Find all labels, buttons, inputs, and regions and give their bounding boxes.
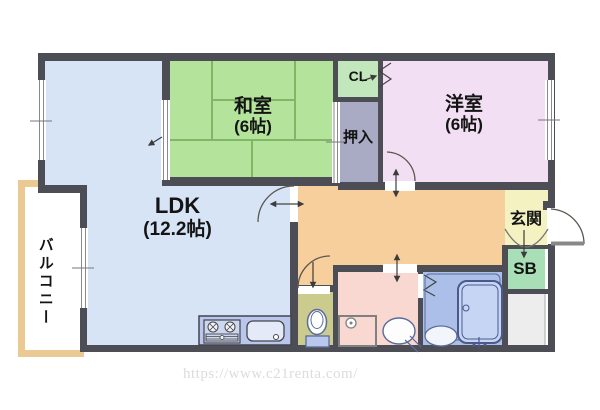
wall-closet-bottom [333, 97, 383, 102]
floorplan-drawing [0, 0, 600, 410]
opening-washroom [383, 264, 417, 273]
watermark-url: https://www.c21renta.com/ [183, 366, 358, 383]
balcony-label: バルコニー [36, 212, 53, 352]
kitchen-counter-icon [199, 316, 291, 345]
opening-yoshitsu [385, 181, 415, 191]
genkan-label: 玄関 [504, 211, 548, 229]
oshiire-label: 押入 [336, 130, 380, 147]
room-storage [506, 292, 545, 346]
shower-basin-icon [425, 326, 457, 346]
wall-washitsu-left [162, 61, 170, 101]
wall-sb-storage [505, 289, 548, 294]
wall-step [38, 185, 87, 193]
washitsu-name: 和室 [195, 96, 311, 117]
ldk-name: LDK [115, 194, 240, 219]
wall-closet-right [378, 61, 383, 183]
wall-washroom-top [333, 265, 503, 272]
ldk-label: LDK (12.2帖) [115, 194, 240, 240]
opening-bathroom [418, 274, 423, 298]
room-ldk-upper [42, 57, 167, 189]
opening-toilet [298, 286, 330, 294]
shoebox-label: SB [506, 259, 544, 278]
washitsu-size: (6帖) [195, 117, 311, 136]
ldk-size: (12.2帖) [115, 219, 240, 240]
wall-toilet-right [333, 265, 338, 345]
wall-top [38, 53, 555, 61]
wall-hall-top [338, 182, 548, 190]
toilet-icon [306, 310, 329, 348]
wall-washitsu-bottom [162, 177, 340, 186]
closet-label: CL [338, 69, 378, 85]
yoshitsu-size: (6帖) [406, 115, 522, 134]
floorplan-page: 和室 (6帖) 洋室 (6帖) LDK (12.2帖) バルコニー CL 押入 … [0, 0, 600, 410]
opening-front-door [547, 208, 556, 244]
slider-washitsu-ldk [161, 100, 170, 180]
washitsu-label: 和室 (6帖) [195, 96, 311, 136]
yoshitsu-label: 洋室 (6帖) [406, 94, 522, 134]
yoshitsu-name: 洋室 [406, 94, 522, 115]
